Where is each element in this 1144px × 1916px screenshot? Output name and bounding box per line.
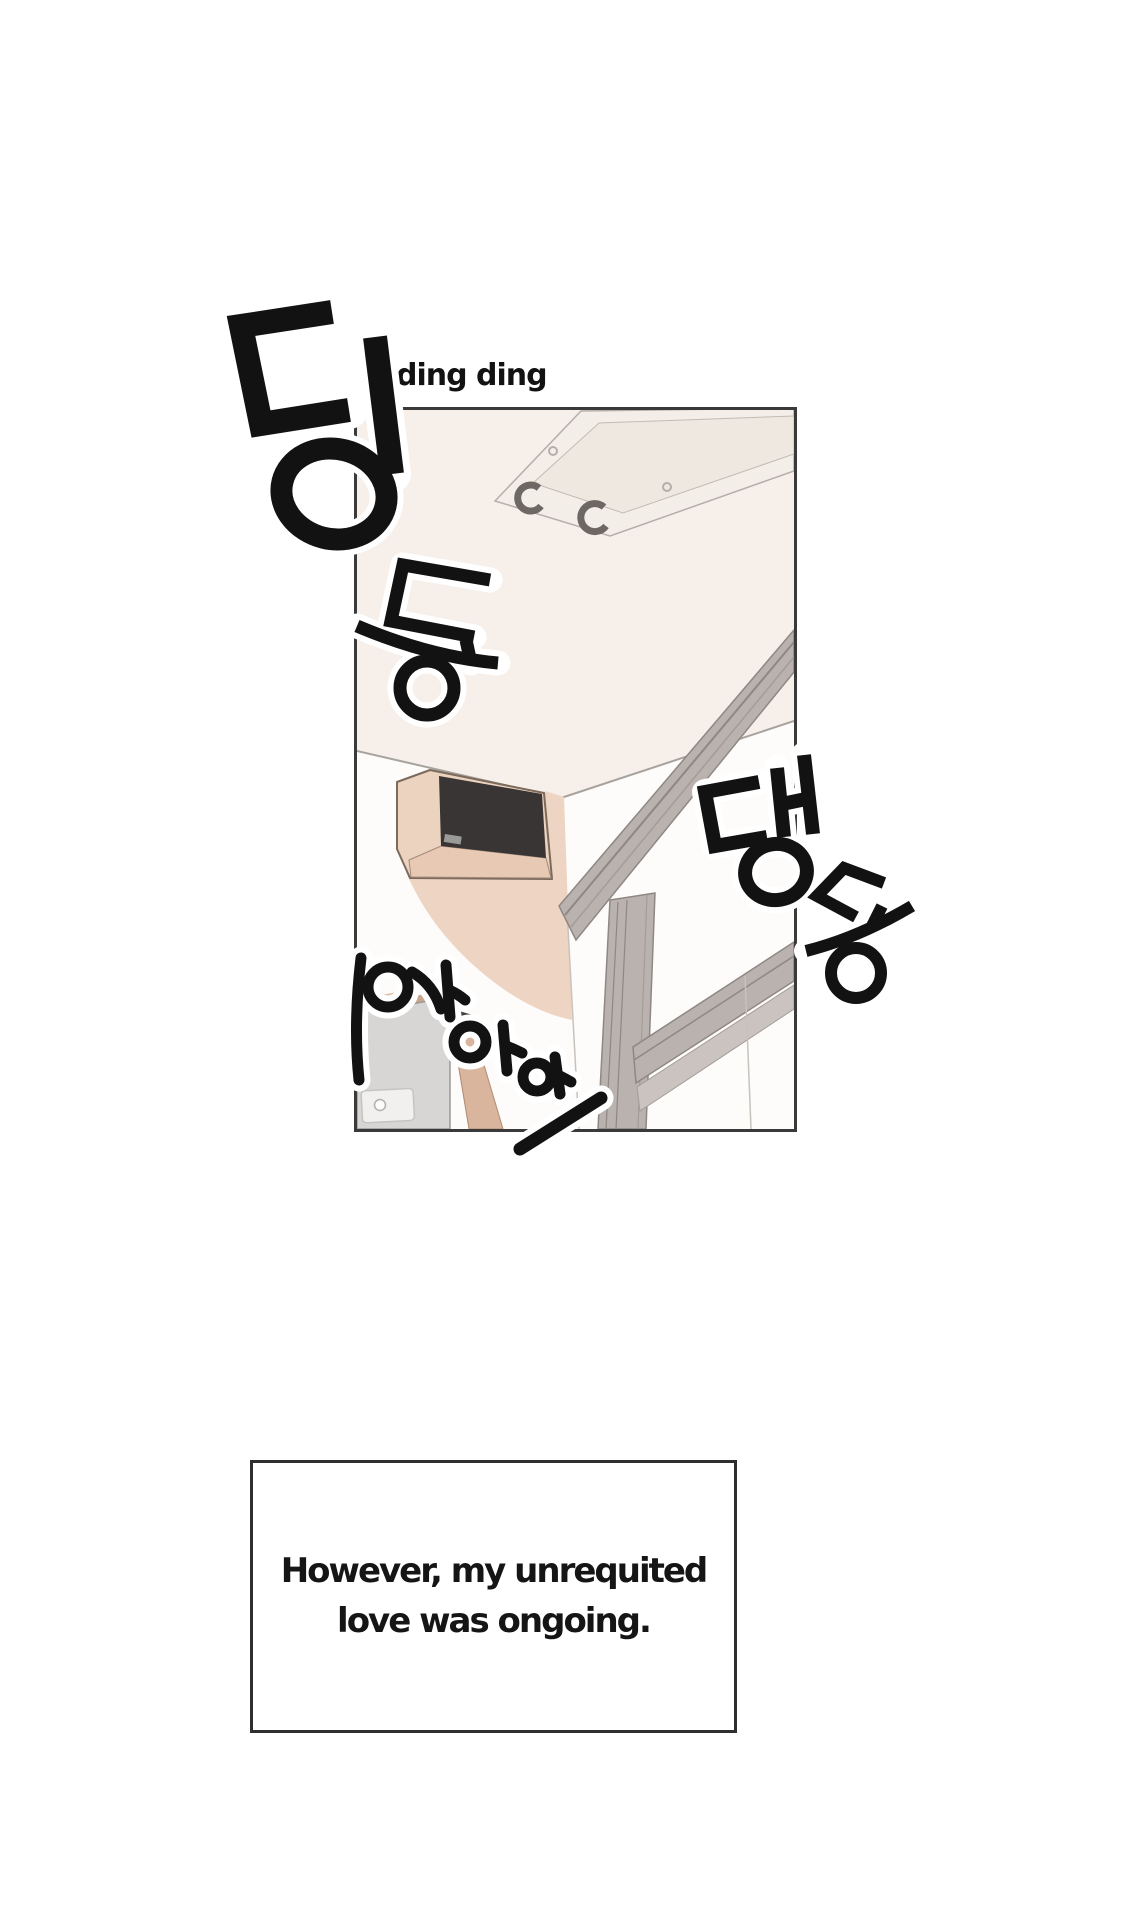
caption-line-2: love was ongoing. xyxy=(281,1597,707,1646)
caption-text: However, my unrequited love was ongoing. xyxy=(281,1547,707,1646)
comic-panel xyxy=(354,407,797,1132)
whiteboard xyxy=(357,985,450,1129)
pinned-paper xyxy=(361,1088,415,1123)
webtoon-page: ding ding xyxy=(0,0,1144,1916)
magnet-dot xyxy=(375,1100,386,1111)
panel-illustration xyxy=(357,410,794,1129)
sfx-dong-hangul-2 xyxy=(806,868,912,998)
caption-line-1: However, my unrequited xyxy=(281,1547,707,1596)
caption-box: However, my unrequited love was ongoing. xyxy=(250,1460,737,1733)
sfx-ding-ding-label: ding ding xyxy=(396,358,547,393)
